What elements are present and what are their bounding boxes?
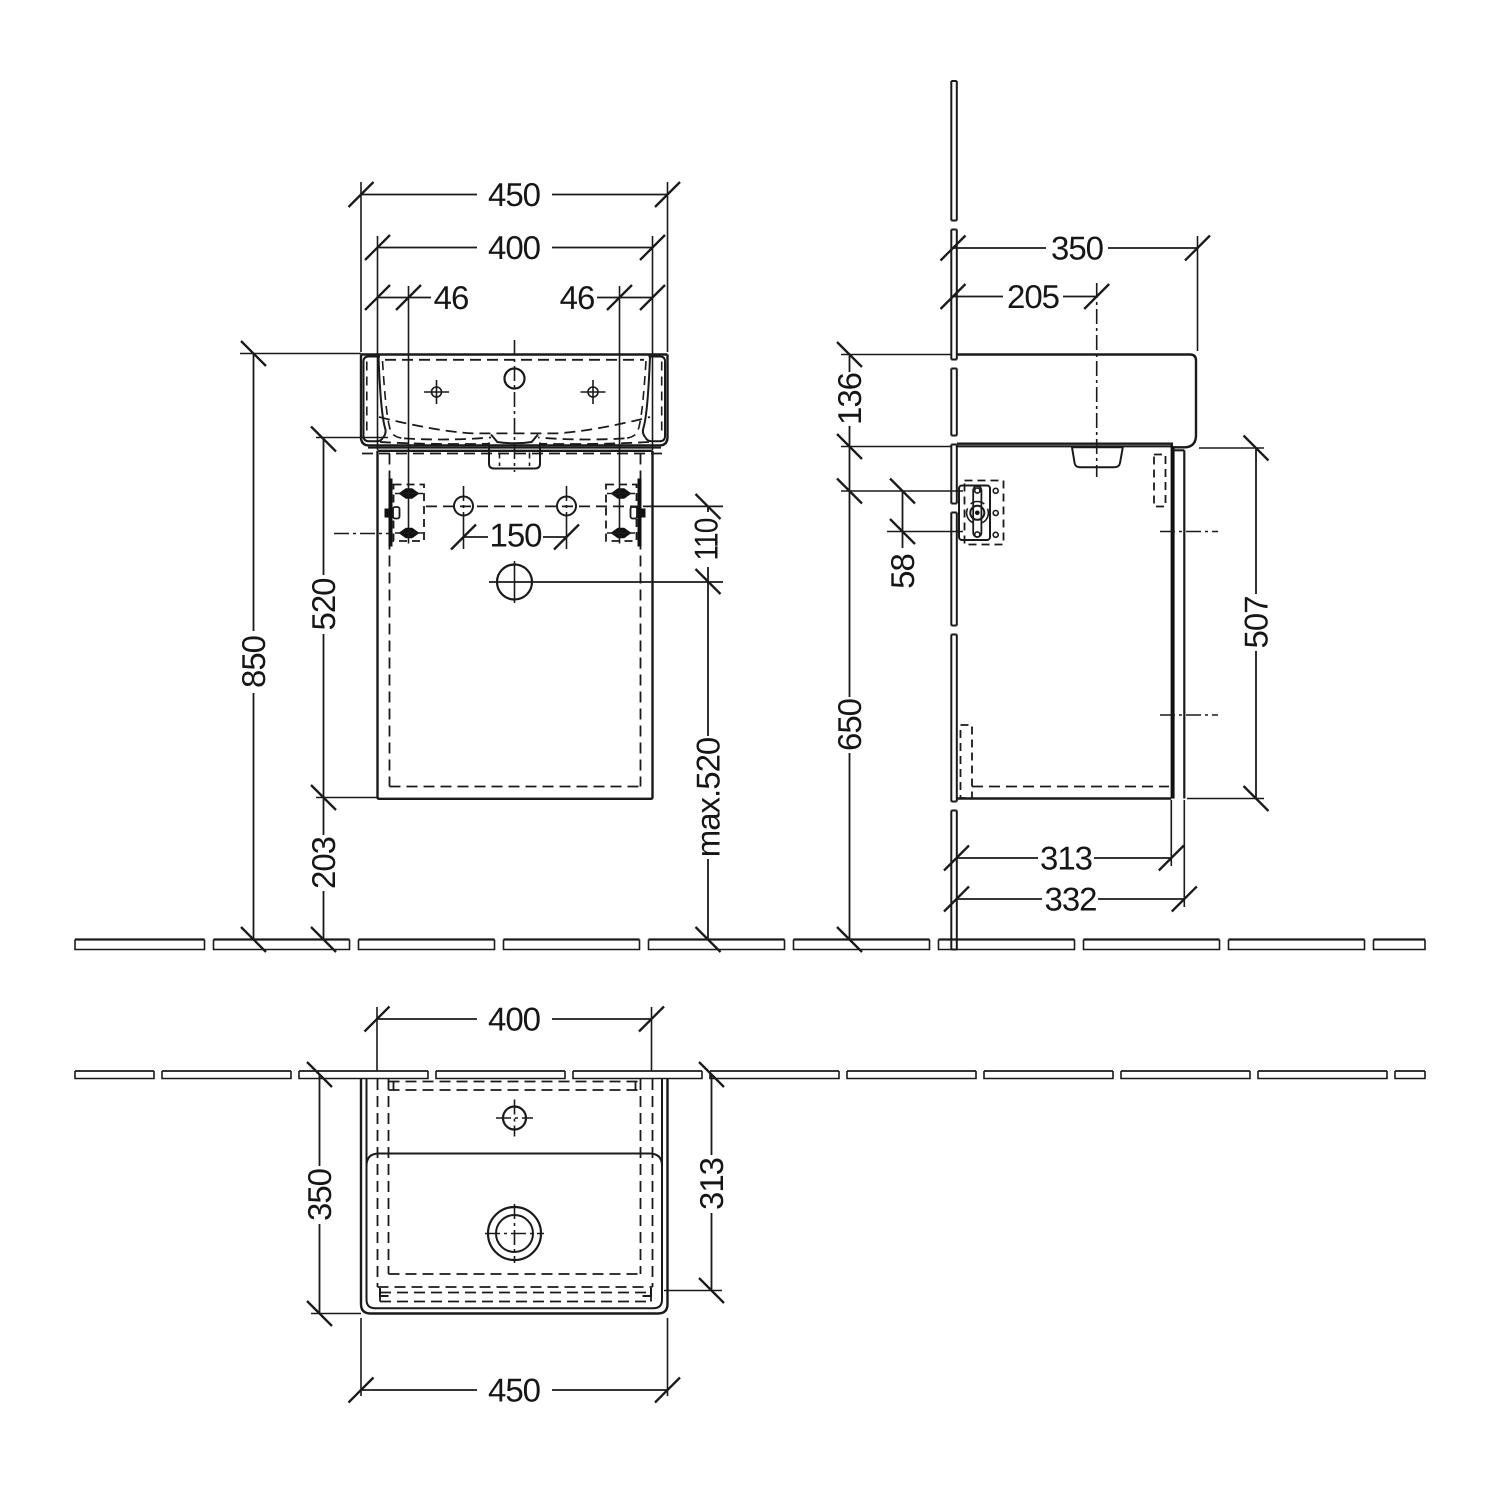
svg-text:450: 450 bbox=[488, 176, 541, 213]
svg-text:400: 400 bbox=[488, 229, 541, 266]
svg-text:110: 110 bbox=[688, 518, 725, 561]
svg-text:400: 400 bbox=[488, 1001, 541, 1038]
svg-text:46: 46 bbox=[434, 279, 469, 316]
svg-text:max.520: max.520 bbox=[690, 737, 727, 857]
svg-text:205: 205 bbox=[1007, 278, 1059, 315]
svg-text:203: 203 bbox=[305, 837, 342, 889]
svg-text:520: 520 bbox=[305, 578, 342, 631]
svg-text:650: 650 bbox=[831, 698, 868, 751]
svg-text:150: 150 bbox=[489, 517, 542, 554]
svg-text:450: 450 bbox=[488, 1372, 541, 1409]
svg-text:332: 332 bbox=[1044, 881, 1096, 918]
svg-text:46: 46 bbox=[560, 279, 595, 316]
svg-text:313: 313 bbox=[693, 1158, 730, 1210]
svg-text:350: 350 bbox=[1051, 230, 1104, 267]
svg-text:507: 507 bbox=[1238, 596, 1275, 648]
svg-text:58: 58 bbox=[884, 554, 921, 589]
svg-text:313: 313 bbox=[1040, 840, 1092, 877]
svg-text:136: 136 bbox=[831, 373, 868, 425]
svg-text:350: 350 bbox=[301, 1168, 338, 1221]
svg-text:850: 850 bbox=[235, 635, 272, 688]
